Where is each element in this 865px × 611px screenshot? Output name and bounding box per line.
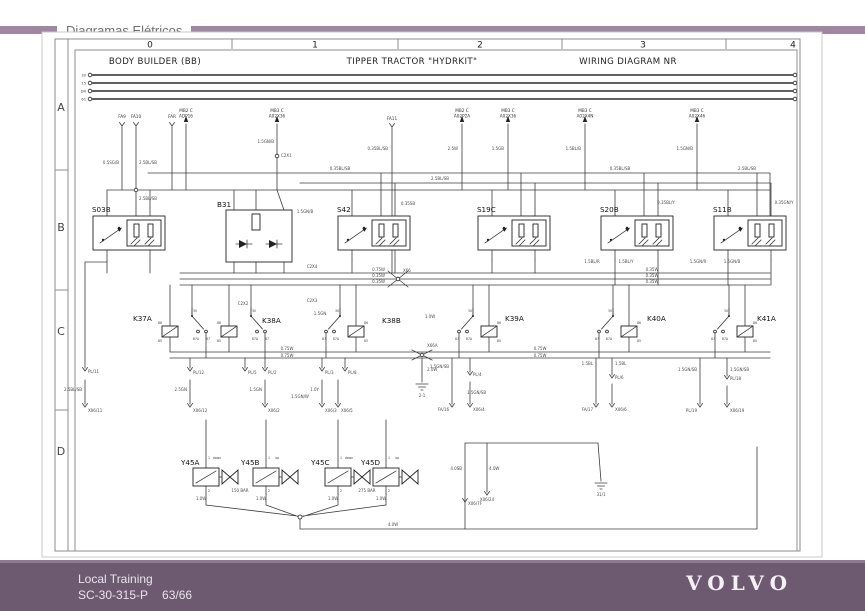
wire-label: 0.35SB <box>401 201 415 206</box>
wire-label: X06/7F <box>468 501 483 506</box>
pin-87a: 87A <box>606 337 613 341</box>
wire-label: 1.0W <box>425 314 435 319</box>
paper <box>42 32 822 557</box>
pin-30: 30 <box>468 309 472 313</box>
pin-85: 85 <box>637 339 641 343</box>
pin-30: 30 <box>724 309 728 313</box>
component-label: Y45B <box>240 458 260 467</box>
document-page: Diagramas Elétricos <box>0 0 865 611</box>
pin-30: 30 <box>335 309 339 313</box>
pin-85: 85 <box>217 339 221 343</box>
pin-2: 2 <box>208 489 210 493</box>
wire-label: 0.75W <box>534 353 547 358</box>
ruler-row-b: B <box>57 221 65 234</box>
pin-1: 1 <box>388 456 390 460</box>
wire-label: PL/11 <box>88 369 100 374</box>
volvo-logo: VOLVO <box>686 571 793 595</box>
wire-label: 0.35GN/Y <box>775 200 794 205</box>
wire-label: 0.75W <box>281 353 294 358</box>
ground-label: 2-1 <box>419 393 426 398</box>
wire-label: C2X2 <box>238 301 249 306</box>
wire-label: 0.35W <box>372 279 385 284</box>
pin-85: 85 <box>364 339 368 343</box>
valve-note: down <box>213 456 222 460</box>
pin-30: 30 <box>252 309 256 313</box>
pin-86: 86 <box>158 321 162 325</box>
valve-note: up <box>275 456 279 460</box>
ruler-col-3: 3 <box>640 41 646 51</box>
wire-label: X06/11 <box>88 408 103 413</box>
component-label: K40A <box>647 314 666 323</box>
wire-label: FA/17 <box>582 407 594 412</box>
wire-label: 0.75W <box>281 346 294 351</box>
component-label: S20B <box>600 205 619 214</box>
wire-label: 1.5BL <box>615 361 627 366</box>
pin-85: 85 <box>753 339 757 343</box>
wire-label: 1.0W <box>256 496 266 501</box>
pin-2: 2 <box>340 489 342 493</box>
wire-label: X06/5 <box>341 408 353 413</box>
wire-label: C2X3 <box>307 298 318 303</box>
wire-label: FA/16 <box>438 407 450 412</box>
pin-2: 2 <box>388 489 390 493</box>
ruler-col-4: 4 <box>790 41 796 51</box>
pressure-label-150bar: 150 BAR <box>231 488 248 493</box>
wire-label: 0.35W <box>646 267 659 272</box>
ruler-col-2: 2 <box>477 41 483 51</box>
component-label: Y45D <box>360 458 381 467</box>
section-wiring-diagram: WIRING DIAGRAM NR <box>579 57 677 67</box>
wire-label: 1.5GN/W <box>291 394 309 399</box>
wire-label: C2X4 <box>307 264 318 269</box>
valve-note: up <box>395 456 399 460</box>
pin-87a: 87A <box>252 337 259 341</box>
ruler-col-0: 0 <box>147 41 153 51</box>
wire-label: 1.5GN <box>314 311 326 316</box>
component-label: K41A <box>757 314 776 323</box>
wiring-diagram: 0 1 2 3 4 A B C D BODY BUILDER (BB) TIPP… <box>0 0 865 611</box>
wire-label: X06/24 <box>480 497 495 502</box>
wire-label: 1.5BL/R <box>584 259 600 264</box>
pin-87: 87 <box>265 337 269 341</box>
wire-label: 2.5BL/SB <box>139 160 157 165</box>
wire-label: 2.5BL/SB <box>64 387 82 392</box>
bus-label-61: 61 <box>81 98 86 102</box>
pin-86: 86 <box>217 321 221 325</box>
pin-86: 86 <box>497 321 501 325</box>
wire-label: 0.35W <box>646 273 659 278</box>
footer: Local Training SC-30-315-P 63/66 VOLVO <box>0 560 865 611</box>
wire-label: 1.5GN/B <box>257 139 274 144</box>
pin-87: 87 <box>595 337 599 341</box>
valve-note: down <box>345 456 354 460</box>
component-label: S03B <box>92 205 111 214</box>
wire-label: 1.0W <box>376 496 386 501</box>
pin-85: 85 <box>158 339 162 343</box>
wire-label: X06/3 <box>325 408 337 413</box>
pressure-label-275bar: 275 BAR <box>358 488 375 493</box>
wire-label: X06/6 <box>615 407 627 412</box>
wire-label: PL/4 <box>473 372 482 377</box>
pin-30: 30 <box>608 309 612 313</box>
wire-label: 0.5SG/B <box>103 160 119 165</box>
wire-label: PL/5 <box>248 370 257 375</box>
pin-1: 1 <box>208 456 210 460</box>
wire-label: X06/19 <box>730 408 745 413</box>
pin-87: 87 <box>206 337 210 341</box>
pin-1: 1 <box>268 456 270 460</box>
footer-page-number: 63/66 <box>162 587 192 603</box>
wire-label: 4.0W <box>489 466 499 471</box>
connector-fa9: FA9 <box>118 114 126 119</box>
section-body-builder: BODY BUILDER (BB) <box>109 57 201 67</box>
ground-label: 31/1 <box>597 492 606 497</box>
wire-label: 0.35BL/SB <box>330 166 351 171</box>
component-label: K38B <box>382 316 401 325</box>
pin-87a: 87A <box>466 337 473 341</box>
pin-87a: 87A <box>722 337 729 341</box>
footer-course: Local Training <box>78 571 192 587</box>
pin-86: 86 <box>637 321 641 325</box>
pin-87: 87 <box>455 337 459 341</box>
connector-mb2-a02p2a: MB2 C <box>455 108 468 113</box>
wire-label: 4.0W <box>388 522 398 527</box>
pin-2: 2 <box>268 489 270 493</box>
wire-label: 2.5GN <box>175 387 187 392</box>
component-label: S19C <box>477 205 496 214</box>
connector-mb3-a02x36: MB3 C <box>270 108 283 113</box>
pin-86: 86 <box>364 321 368 325</box>
wire-label: PL/19 <box>686 408 698 413</box>
wire-label: 2.5BL/SB <box>738 166 756 171</box>
ruler-col-1: 1 <box>312 41 318 51</box>
wire-label: 1.5GN/B <box>297 209 314 214</box>
wire-label: 0.75W <box>372 267 385 272</box>
ruler-row-c: C <box>57 325 65 338</box>
pin-1: 1 <box>340 456 342 460</box>
mid-rails <box>180 271 770 287</box>
bus-label-30: 30 <box>81 74 86 78</box>
wire-label: 1.0W <box>328 496 338 501</box>
wire-label: 0.35W <box>646 279 659 284</box>
wire-label: 1.0W <box>196 496 206 501</box>
wire-label: 1.5GB <box>492 146 504 151</box>
wire-label: 1.0Y <box>310 387 319 392</box>
wire-label: 2.5BL/SB <box>139 196 157 201</box>
wire-label: PL/6 <box>615 375 624 380</box>
component-label: S42 <box>337 205 351 214</box>
connector-far: FAR <box>168 114 176 119</box>
ruler-row-d: D <box>57 445 65 458</box>
wire-label: 1.5GN/SB <box>730 367 749 372</box>
wire-label: X06/12 <box>193 408 208 413</box>
wire-label: PL/2 <box>268 370 277 375</box>
connector-mb3-a02x46: MB3 C <box>690 108 703 113</box>
wire-label: 2.5W <box>448 146 458 151</box>
connector-fa11: FA11 <box>387 116 398 121</box>
wire-label: 1.5GN/SB <box>467 390 486 395</box>
section-tipper-tractor: TIPPER TRACTOR "HYDRKIT" <box>346 57 478 67</box>
wire-label: 2.5BL/SB <box>431 176 449 181</box>
wire-label: 1.5GN/SB <box>430 364 449 369</box>
footer-doc-number: SC-30-315-P <box>78 587 148 603</box>
wire-label: 4.0SB <box>450 466 462 471</box>
wire-label: X66 <box>403 268 411 273</box>
wire-label: 1.5GN/SB <box>678 367 697 372</box>
wire-label: 1.5BL <box>582 361 594 366</box>
wire-label: PL/12 <box>193 370 205 375</box>
wire-label: 0.35BL/Y <box>657 200 675 205</box>
wire-label: 1.5BL/Y <box>618 259 634 264</box>
connector-mb2-adp16: MB2 C <box>179 108 192 113</box>
bus-label-dr: DR <box>81 90 87 94</box>
component-label: Y45C <box>310 458 330 467</box>
ruler-row-a: A <box>57 101 65 114</box>
wire-label: PL/18 <box>730 376 742 381</box>
component-label: K37A <box>133 314 152 323</box>
wire-label: X66A <box>427 343 438 348</box>
component-label: S11B <box>713 205 732 214</box>
bus-label-15: 15 <box>81 82 86 86</box>
wire-label: 1.5GN/B <box>676 146 693 151</box>
pin-87: 87 <box>711 337 715 341</box>
wire-label: 0.35BL/SB <box>610 166 631 171</box>
wire-label: 1.5GN/R <box>690 259 707 264</box>
wire-label: 1.5BL/B <box>566 146 582 151</box>
pin-85: 85 <box>497 339 501 343</box>
connector-fa10: FA10 <box>131 114 142 119</box>
wire-label: 0.35W <box>372 273 385 278</box>
pin-30: 30 <box>193 309 197 313</box>
component-label: K39A <box>505 314 524 323</box>
wire-label: PL/8 <box>348 370 357 375</box>
connector-mb3-a02x4n: MB3 C <box>578 108 591 113</box>
wire-label: X06/4 <box>473 407 485 412</box>
pin-87: 87 <box>322 337 326 341</box>
wire-label: 0.35BL/SB <box>367 146 388 151</box>
component-label: K38A <box>262 316 281 325</box>
pin-87a: 87A <box>193 337 200 341</box>
wire-label: X06/2 <box>268 408 280 413</box>
wire-label: 1.5GN/B <box>724 259 741 264</box>
wire-label: 0.75W <box>534 346 547 351</box>
component-label: B31 <box>217 200 231 209</box>
connector-mb3-a02x36b: MB3 C <box>501 108 514 113</box>
pin-86: 86 <box>753 321 757 325</box>
wire-label: PL/3 <box>325 370 334 375</box>
wire-label: C2X1 <box>281 153 292 158</box>
wire-label: 1.5GN <box>250 387 262 392</box>
pin-87a: 87A <box>333 337 340 341</box>
component-label: Y45A <box>180 458 200 467</box>
